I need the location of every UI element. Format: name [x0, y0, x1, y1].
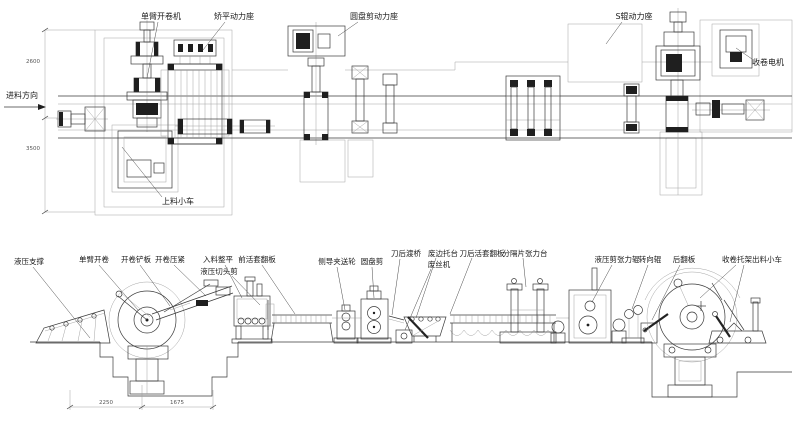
roller-set-plan [506, 76, 560, 140]
label-hydraulic-crop-shear: 液压切头剪 [200, 266, 238, 276]
label-front-loop-flap: 前活套翻板 [238, 254, 276, 264]
dim-lower: 3500 [26, 146, 40, 152]
label-scrap-winder: 废丝机 [428, 259, 451, 269]
entry-shaft-plan [56, 107, 108, 131]
label-post-knife-bridge: 刀后渡桥 [391, 248, 421, 258]
front-loop-elev [271, 315, 333, 342]
floor-lines [30, 342, 792, 397]
scrap-table-elev [396, 317, 446, 343]
elev-labels: 液压支撑 单臂开卷 开卷铲板 开卷压紧 入料整平 液压切头剪 前活套翻板 侧导夹… [14, 248, 782, 338]
label-loading-trolley: 上料小车 [162, 196, 194, 206]
roll-station-a-plan [352, 66, 368, 133]
leveler-crop-elev [232, 277, 274, 343]
cad-drawing-canvas: 2600 3500 进料方向 单臂开卷机 矫平动力座 圆盘剪动力座 S辊动力座 … [0, 0, 800, 425]
rewind-motor-plan [712, 24, 759, 76]
disc-shear-plan [288, 22, 345, 145]
slitting-line-drawing: 2600 3500 进料方向 单臂开卷机 矫平动力座 圆盘剪动力座 S辊动力座 … [0, 0, 800, 425]
dim-bottom-right: 1675 [170, 400, 184, 406]
label-entry-leveler: 入料整平 [203, 254, 233, 264]
label-scrap-edge-table: 废边托台 [428, 248, 458, 258]
label-rear-flap: 后翻板 [673, 254, 696, 264]
label-hydraulic-shear-tension-roll: 液压剪张力辊 [595, 254, 640, 264]
label-single-arm-uncoiler: 单臂开卷 [79, 254, 109, 264]
label-turning-roll: 转向辊 [639, 254, 662, 264]
label-uncoiler-plan: 单臂开卷机 [141, 11, 181, 21]
label-rewind-motor: 收卷电机 [752, 57, 784, 67]
label-hydraulic-support: 液压支撑 [14, 256, 44, 266]
s-roll-plan [624, 84, 639, 133]
side-guide-elev [334, 305, 358, 343]
label-side-guide-pinch-roll: 侧导夹送轮 [318, 256, 356, 266]
top-view: 2600 3500 进料方向 单臂开卷机 矫平动力座 圆盘剪动力座 S辊动力座 … [4, 8, 792, 215]
bottom-view: 2250 1675 液压支撑 单臂开卷 开卷铲板 开卷压紧 入料整平 液压切头剪… [14, 248, 792, 410]
label-post-knife-loop-flap: 刀后活套翻板 [460, 248, 505, 258]
recoiler-plan [656, 8, 770, 195]
post-knife-bridge-elev [389, 316, 404, 323]
plan-dimensions: 2600 3500 进料方向 [4, 28, 95, 214]
dim-bottom-left: 2250 [99, 400, 113, 406]
roll-station-b-plan [383, 74, 397, 133]
elev-dimensions: 2250 1675 [67, 385, 216, 410]
label-uncoiler-press: 开卷压紧 [155, 254, 185, 264]
label-separator-tension-table: 分隔片张力台 [503, 248, 548, 258]
label-disc-shear-power: 圆盘剪动力座 [350, 11, 398, 21]
dim-upper: 2600 [26, 59, 40, 65]
plan-labels: 单臂开卷机 矫平动力座 圆盘剪动力座 S辊动力座 收卷电机 上料小车 [122, 11, 784, 206]
label-recoil-cradle-trolley: 收卷托架出料小车 [722, 254, 782, 264]
label-disc-shear: 圆盘剪 [361, 256, 384, 266]
leveler-plan [161, 40, 229, 144]
feed-direction-label: 进料方向 [6, 90, 38, 100]
label-uncoiler-shovel: 开卷铲板 [121, 254, 151, 264]
pinch-units-plan [175, 119, 275, 134]
label-s-roll-power: S辊动力座 [615, 11, 652, 21]
hydraulic-support-elev [36, 310, 110, 343]
rear-flap-elev [641, 314, 668, 343]
label-leveler-power: 矫平动力座 [214, 11, 254, 21]
recoiler-elev [645, 268, 744, 397]
hyd-shear-tension-elev [551, 268, 626, 343]
